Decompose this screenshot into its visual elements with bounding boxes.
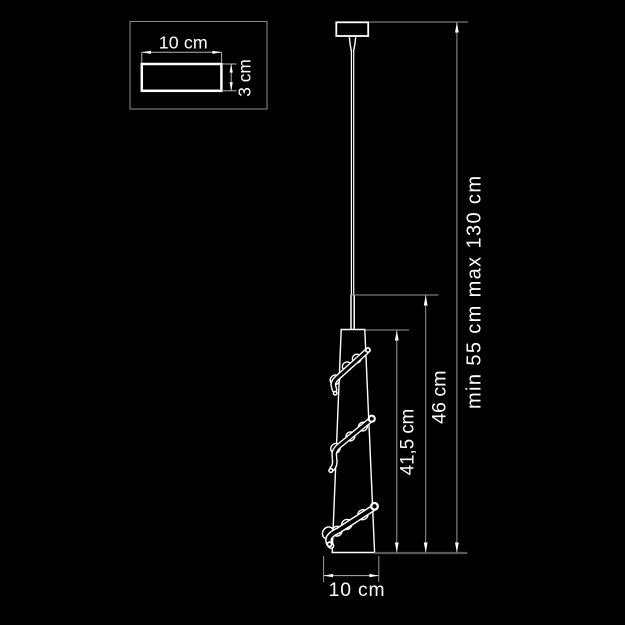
svg-text:46 cm: 46 cm (428, 370, 450, 424)
svg-text:41,5 cm: 41,5 cm (398, 409, 419, 476)
svg-text:10 cm: 10 cm (329, 580, 385, 601)
svg-text:min 55 cm max 130 cm: min 55 cm max 130 cm (464, 176, 486, 409)
svg-text:3 cm: 3 cm (235, 59, 255, 96)
svg-text:10 cm: 10 cm (159, 32, 208, 52)
